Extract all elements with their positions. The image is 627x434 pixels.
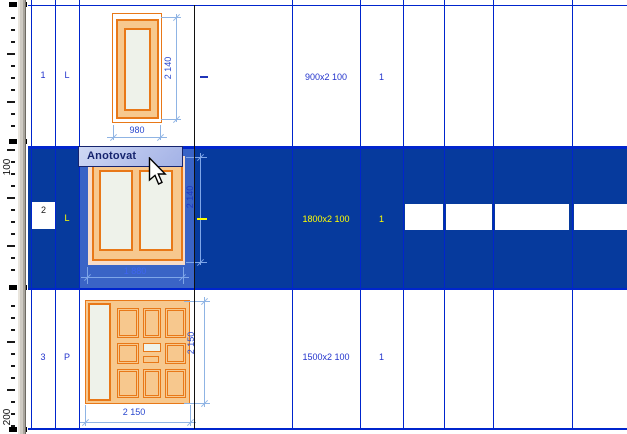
row3-id-cell[interactable]: 3: [31, 351, 55, 363]
drawing-column-divider: [194, 5, 195, 429]
row1-hinge-cell[interactable]: L: [55, 69, 79, 81]
ruler-tick: [7, 245, 15, 247]
ruler-tick: [11, 305, 15, 307]
door-small-panel: [143, 356, 159, 363]
row3-width-dim: 2 150: [104, 407, 164, 417]
grid-row-line: [28, 5, 627, 6]
row1-size-cell[interactable]: 900x2 100: [292, 71, 360, 83]
ruler-tick: [11, 221, 15, 223]
row1-qty-cell[interactable]: 1: [360, 71, 403, 83]
row3-qty-cell[interactable]: 1: [360, 351, 403, 363]
row2-edit-cell-2[interactable]: [446, 204, 492, 230]
row2-edit-cell-3[interactable]: [495, 204, 569, 230]
grid-column-line: [493, 0, 494, 429]
ruler-tick: [7, 197, 15, 199]
ruler-tick: [11, 113, 15, 115]
row2-hinge-cell[interactable]: L: [55, 212, 79, 224]
ruler-tick: [11, 209, 15, 211]
row2-id-cell[interactable]: 2: [32, 202, 55, 229]
row2-edit-cell-1[interactable]: [405, 204, 443, 230]
row2-id-value: 2: [32, 204, 55, 216]
row2-edit-cell-4[interactable]: [574, 204, 627, 230]
row1-height-dim: 2 140: [163, 48, 175, 88]
ruler-tick: [11, 329, 15, 331]
grid-row-line: [28, 428, 627, 430]
ruler-tick: [7, 389, 15, 391]
ruler-tick: [7, 53, 15, 55]
ruler-tick: [11, 365, 15, 367]
ruler-tick: [11, 89, 15, 91]
grid-column-line: [572, 0, 573, 429]
row3-hinge-cell[interactable]: P: [55, 351, 79, 363]
ruler-tick: [7, 341, 15, 343]
ruler-edge-strip: [17, 0, 26, 434]
ruler-tick: [11, 257, 15, 259]
grid-row-line: [28, 288, 627, 290]
row1-width-dim: 980: [115, 125, 159, 135]
grid-column-line: [79, 0, 80, 429]
row2-qty-cell[interactable]: 1: [360, 213, 403, 225]
ruler-tick: [11, 29, 15, 31]
ruler-tick: [11, 65, 15, 67]
ruler-tick: [11, 125, 15, 127]
ruler-tick: [11, 269, 15, 271]
ruler-tick: [11, 353, 15, 355]
ruler-tick: [11, 317, 15, 319]
row2-width-dim: 1 880: [105, 266, 165, 276]
ruler-tick: [11, 77, 15, 79]
ruler-tick: [11, 17, 15, 19]
ruler-tick: [11, 233, 15, 235]
grid-column-line: [31, 0, 32, 429]
ruler-tick: [11, 401, 15, 403]
grid-column-line: [444, 0, 445, 429]
ruler-tick: [7, 149, 15, 151]
vertical-ruler: 100 200: [0, 0, 27, 434]
ruler-label-200: 200: [2, 406, 16, 428]
row3-height-dim: 2 150: [186, 323, 198, 363]
ruler-tick: [11, 185, 15, 187]
row1-sill-marker: [200, 76, 208, 78]
schedule-view: 100 200 2 2 140 980: [0, 0, 627, 434]
row3-size-cell[interactable]: 1500x2 100: [292, 351, 360, 363]
grid-column-line: [403, 0, 404, 429]
row2-sill-marker: [197, 218, 207, 220]
ruler-tick: [11, 41, 15, 43]
ruler-tick: [11, 377, 15, 379]
cursor-icon: [148, 157, 168, 187]
ruler-label-100: 100: [2, 156, 16, 178]
row1-id-cell[interactable]: 1: [31, 69, 55, 81]
row2-height-dim: 2 140: [185, 177, 197, 217]
ruler-tick: [7, 101, 15, 103]
row2-size-cell[interactable]: 1800x2 100: [292, 213, 360, 225]
door-letterplate: [143, 343, 161, 352]
